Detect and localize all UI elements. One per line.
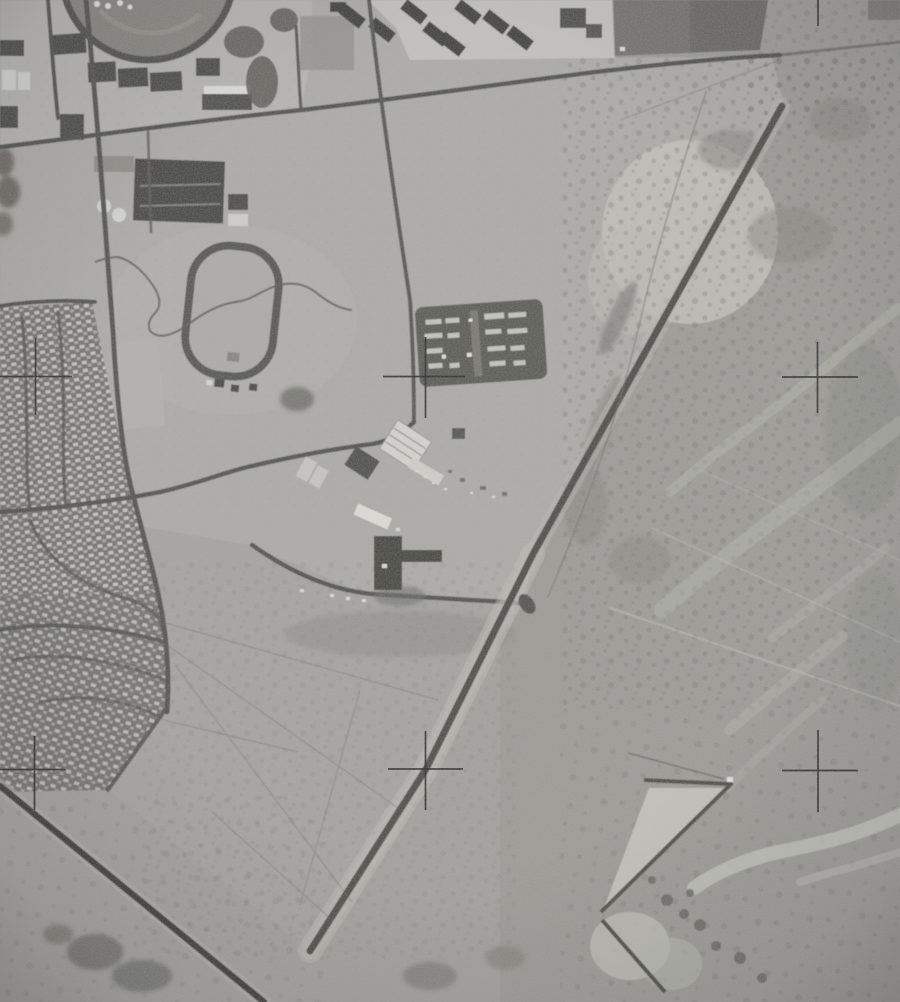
vignette bbox=[0, 0, 900, 1002]
aerial-photograph bbox=[0, 0, 900, 1002]
aerial-photo-canvas bbox=[0, 0, 900, 1002]
